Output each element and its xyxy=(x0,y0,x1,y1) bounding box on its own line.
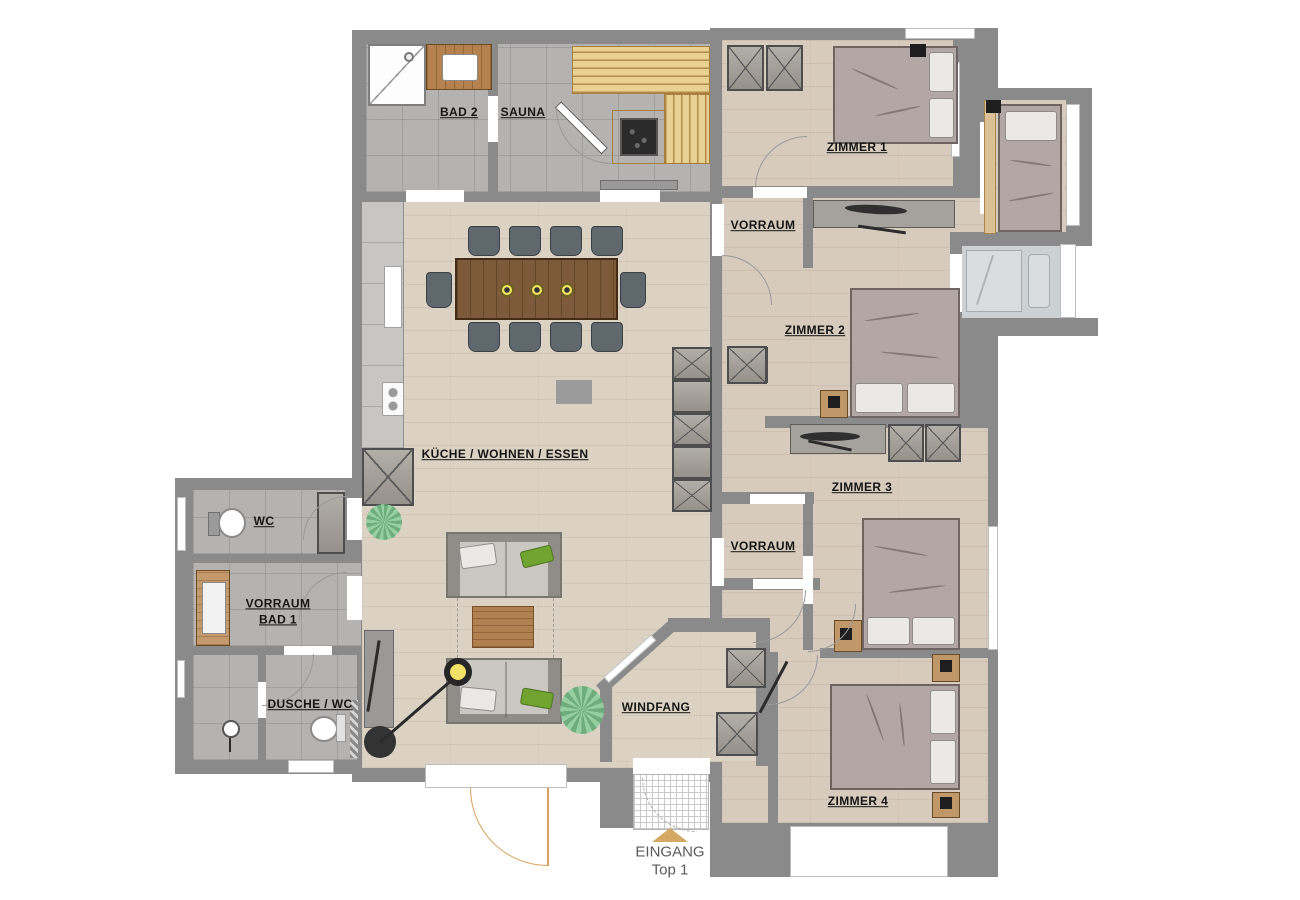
entrance-unit-label: Top 1 xyxy=(652,862,689,879)
wall-divider-bad2-sauna-b xyxy=(488,142,498,192)
door-kitchen-vorraum-top xyxy=(712,204,724,256)
door-zimmer1 xyxy=(753,187,807,198)
storage-cabinet-5 xyxy=(672,479,712,512)
dining-chair-2 xyxy=(509,226,541,256)
wardrobe-windfang-b xyxy=(716,712,758,756)
storage-cabinet-4 xyxy=(672,446,712,479)
shower-arm-dusche xyxy=(229,738,231,752)
pendant-light-3 xyxy=(560,283,574,297)
floor-mat xyxy=(556,380,592,404)
door-vorraum2-south xyxy=(753,579,809,589)
room-label-zimmer3: ZIMMER 3 xyxy=(832,480,893,496)
room-label-zimmer1: ZIMMER 1 xyxy=(827,140,888,156)
shower-head-bad2 xyxy=(404,52,414,62)
wall-windfang-west xyxy=(600,684,612,762)
dining-chair-8 xyxy=(591,322,623,352)
dining-chair-6 xyxy=(509,322,541,352)
kitchen-sink xyxy=(384,266,402,328)
storage-cabinet-1 xyxy=(672,347,712,380)
lamp-zimmer2 xyxy=(828,396,840,408)
wall-zimmer3-east-jog xyxy=(958,336,998,426)
dining-chair-5 xyxy=(468,322,500,352)
window-zimmer3-east xyxy=(988,526,998,650)
pendant-light-2 xyxy=(530,283,544,297)
shower-head-dusche xyxy=(222,720,240,738)
coffee-table xyxy=(472,606,534,648)
wardrobe-zimmer3-a xyxy=(888,424,924,462)
room-label-vorraum-top: VORRAUM xyxy=(731,218,796,234)
wall-bad1-south xyxy=(193,646,361,655)
sauna-sideboard xyxy=(600,180,678,190)
window-living-south xyxy=(425,764,567,788)
rug-guide-left xyxy=(457,598,458,658)
wardrobe-windfang-a xyxy=(726,648,766,688)
kitchen-cooktop xyxy=(382,382,404,416)
door-vorraum2-north xyxy=(750,494,805,504)
toilet-tank-dusche xyxy=(336,714,346,742)
window-zimmer4-south xyxy=(790,826,948,877)
room-label-zimmer2: ZIMMER 2 xyxy=(785,323,846,339)
door-sauna-living xyxy=(600,190,660,202)
floor-plan: BAD 2 SAUNA ZIMMER 1 VORRAUM ZIMMER 2 ZI… xyxy=(0,0,1300,900)
alcove-wood-strip xyxy=(984,100,996,234)
door-bad2 xyxy=(406,190,464,202)
toilet-wc xyxy=(218,508,246,538)
single-bed-alcove xyxy=(998,104,1062,232)
room-label-vorraum-bottom: VORRAUM xyxy=(731,539,796,555)
storage-cabinet-2 xyxy=(672,380,712,413)
window-bath-south xyxy=(288,760,334,773)
entrance-label: EINGANG xyxy=(635,844,704,861)
dining-chair-10 xyxy=(620,272,646,308)
room-label-bad2: BAD 2 xyxy=(440,105,478,121)
door-entry xyxy=(633,758,710,774)
wall-lamp-alcove xyxy=(986,100,1001,113)
wall-lamp-zimmer1 xyxy=(910,44,926,57)
dining-chair-4 xyxy=(591,226,623,256)
wardrobe-zimmer1-b xyxy=(766,45,803,91)
balcony-railing xyxy=(1060,244,1076,318)
double-bed-zimmer3 xyxy=(862,518,960,650)
window-dusche-west xyxy=(177,660,185,698)
pendant-light-1 xyxy=(500,283,514,297)
sink-bad1 xyxy=(202,582,226,634)
room-label-wc: WC xyxy=(254,514,275,530)
door-bad1-dusche xyxy=(284,646,332,655)
room-label-vorraum-bad1: VORRAUM BAD 1 xyxy=(246,596,311,627)
dining-chair-1 xyxy=(468,226,500,256)
window-zimmer1-top xyxy=(905,28,975,39)
double-bed-zimmer4 xyxy=(830,684,960,790)
wardrobe-zimmer3-b xyxy=(925,424,961,462)
room-label-vorraum-bad1-line2: BAD 1 xyxy=(259,612,297,626)
window-alcove-east xyxy=(1066,104,1080,226)
window-wc-west xyxy=(177,497,186,551)
wardrobe-zimmer2 xyxy=(727,346,767,384)
room-label-sauna: SAUNA xyxy=(501,105,546,121)
sauna-heater xyxy=(620,118,658,156)
sauna-bench-right xyxy=(664,94,710,164)
wall-vorraum-top-east xyxy=(803,196,813,268)
wall-entry-left xyxy=(600,758,633,828)
double-bed-zimmer1 xyxy=(833,46,958,144)
door-vorraum-bad1 xyxy=(347,576,362,620)
dining-chair-7 xyxy=(550,322,582,352)
room-label-windfang: WINDFANG xyxy=(622,700,691,716)
wall-balcony-south xyxy=(950,318,1098,336)
wardrobe-zimmer1-a xyxy=(727,45,764,91)
wall-dusche-divider-b xyxy=(258,718,266,760)
toilet-dusche xyxy=(310,716,338,742)
lamp-zimmer4-b xyxy=(940,797,952,809)
room-label-vorraum-bad1-line1: VORRAUM xyxy=(246,596,311,610)
wall-wc-south xyxy=(193,554,361,563)
double-bed-zimmer2 xyxy=(850,288,960,418)
sauna-bench-top xyxy=(572,46,710,94)
storage-cabinet-3 xyxy=(672,413,712,446)
entrance-arrow-icon xyxy=(652,828,688,842)
balcony-lounger xyxy=(966,250,1022,312)
arc-lamp-head xyxy=(444,658,472,686)
lamp-zimmer4-a xyxy=(940,660,952,672)
plant-2 xyxy=(560,686,604,734)
plant-1 xyxy=(366,504,402,540)
dining-chair-9 xyxy=(426,272,452,308)
room-label-dusche-wc: DUSCHE / WC xyxy=(267,697,352,713)
balcony-cushion xyxy=(1028,254,1050,308)
shower-bad2 xyxy=(368,44,426,106)
room-label-kueche: KÜCHE / WOHNEN / ESSEN xyxy=(422,447,589,463)
sink-bad2 xyxy=(442,54,478,81)
sofa-bottom-pillow-1 xyxy=(459,686,497,712)
door-kitchen-vorraum2 xyxy=(712,538,724,586)
door-bad2-sauna xyxy=(488,96,498,142)
kitchen-corner-unit xyxy=(362,448,414,506)
dining-chair-3 xyxy=(550,226,582,256)
rug-guide-right xyxy=(553,598,554,658)
door-wc xyxy=(347,498,362,540)
wall-windfang-north xyxy=(668,618,760,632)
room-label-zimmer4: ZIMMER 4 xyxy=(828,794,889,810)
